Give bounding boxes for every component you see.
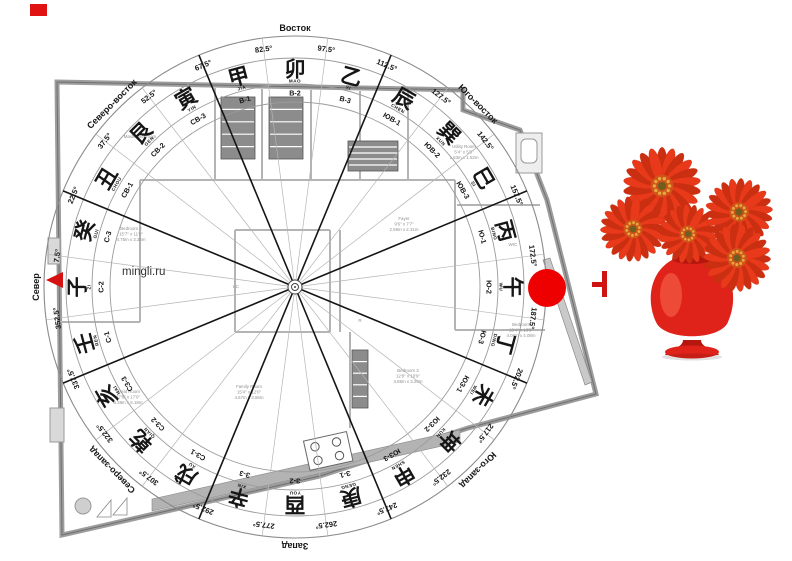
sector-pinyin-mao: MAO xyxy=(289,79,301,84)
degree-label-277.5: 277.5° xyxy=(252,519,275,531)
direction-label-0: Север xyxy=(31,273,41,301)
flower-speckle xyxy=(666,189,669,192)
sector-pinyin-zi: ZI xyxy=(87,284,92,289)
direction-label-225: Юго-запад xyxy=(458,450,498,490)
degree-label-262.5: 262.5° xyxy=(315,519,338,531)
room-label: Bedroom 215'7" x 11'0"4.75m x 3.35m xyxy=(116,226,145,242)
bathtub-icon xyxy=(521,139,537,163)
flower-speckle xyxy=(663,192,666,195)
degree-label-112.5: 112.5° xyxy=(375,57,398,73)
flower-speckle xyxy=(668,184,671,187)
direction-label-90: Восток xyxy=(279,23,311,33)
degree-label-82.5: 82.5° xyxy=(254,43,273,54)
room-tag: WIC xyxy=(509,242,519,247)
vase-shadow xyxy=(662,354,722,361)
flower-vase-photo xyxy=(590,147,783,360)
column xyxy=(75,498,91,514)
room-tag: WIC xyxy=(284,113,294,118)
sector-code-mao: В-2 xyxy=(289,89,301,98)
flower-speckle xyxy=(658,192,661,195)
flower-speckle xyxy=(666,180,669,183)
room-tag: LC xyxy=(233,284,240,289)
red-square-marker xyxy=(30,4,47,16)
sector-code-you: З-2 xyxy=(290,477,301,486)
degree-label-247.5: 247.5° xyxy=(375,500,399,517)
sector-pinyin-wu: WU xyxy=(499,283,504,292)
degree-label-7.5: 7.5° xyxy=(52,248,63,262)
sector-pinyin-you: YOU xyxy=(289,491,301,496)
sector-code-wu: Ю-2 xyxy=(485,280,494,294)
flower-speckle xyxy=(653,184,656,187)
sector-code-zi: С-2 xyxy=(97,281,106,293)
vase-highlight xyxy=(660,273,682,317)
watermark-mingli: mingli.ru xyxy=(122,266,165,278)
red-circle-marker xyxy=(528,269,566,307)
degree-label-67.5: 67.5° xyxy=(193,58,213,73)
room-tag: WIC xyxy=(235,113,245,118)
compass-hub-dot xyxy=(294,286,296,288)
fengshui-compass-floorplan: Master BedroomBedroom 215'7" x 11'0"4.75… xyxy=(0,0,792,561)
degree-label-97.5: 97.5° xyxy=(317,43,336,54)
wall-bump xyxy=(50,408,64,442)
direction-label-270: Запад xyxy=(281,541,308,551)
north-arrow-marker xyxy=(46,272,63,288)
screenshot-root: Master BedroomBedroom 215'7" x 11'0"4.75… xyxy=(0,0,792,561)
red-plus-marker-arm xyxy=(592,282,603,287)
flower-speckle xyxy=(654,189,657,192)
flower-speckle xyxy=(654,180,657,183)
flower-speckle xyxy=(658,177,661,180)
wardrobe-hatch xyxy=(348,141,398,171)
flower-speckle xyxy=(663,177,666,180)
flower-core xyxy=(658,182,666,190)
